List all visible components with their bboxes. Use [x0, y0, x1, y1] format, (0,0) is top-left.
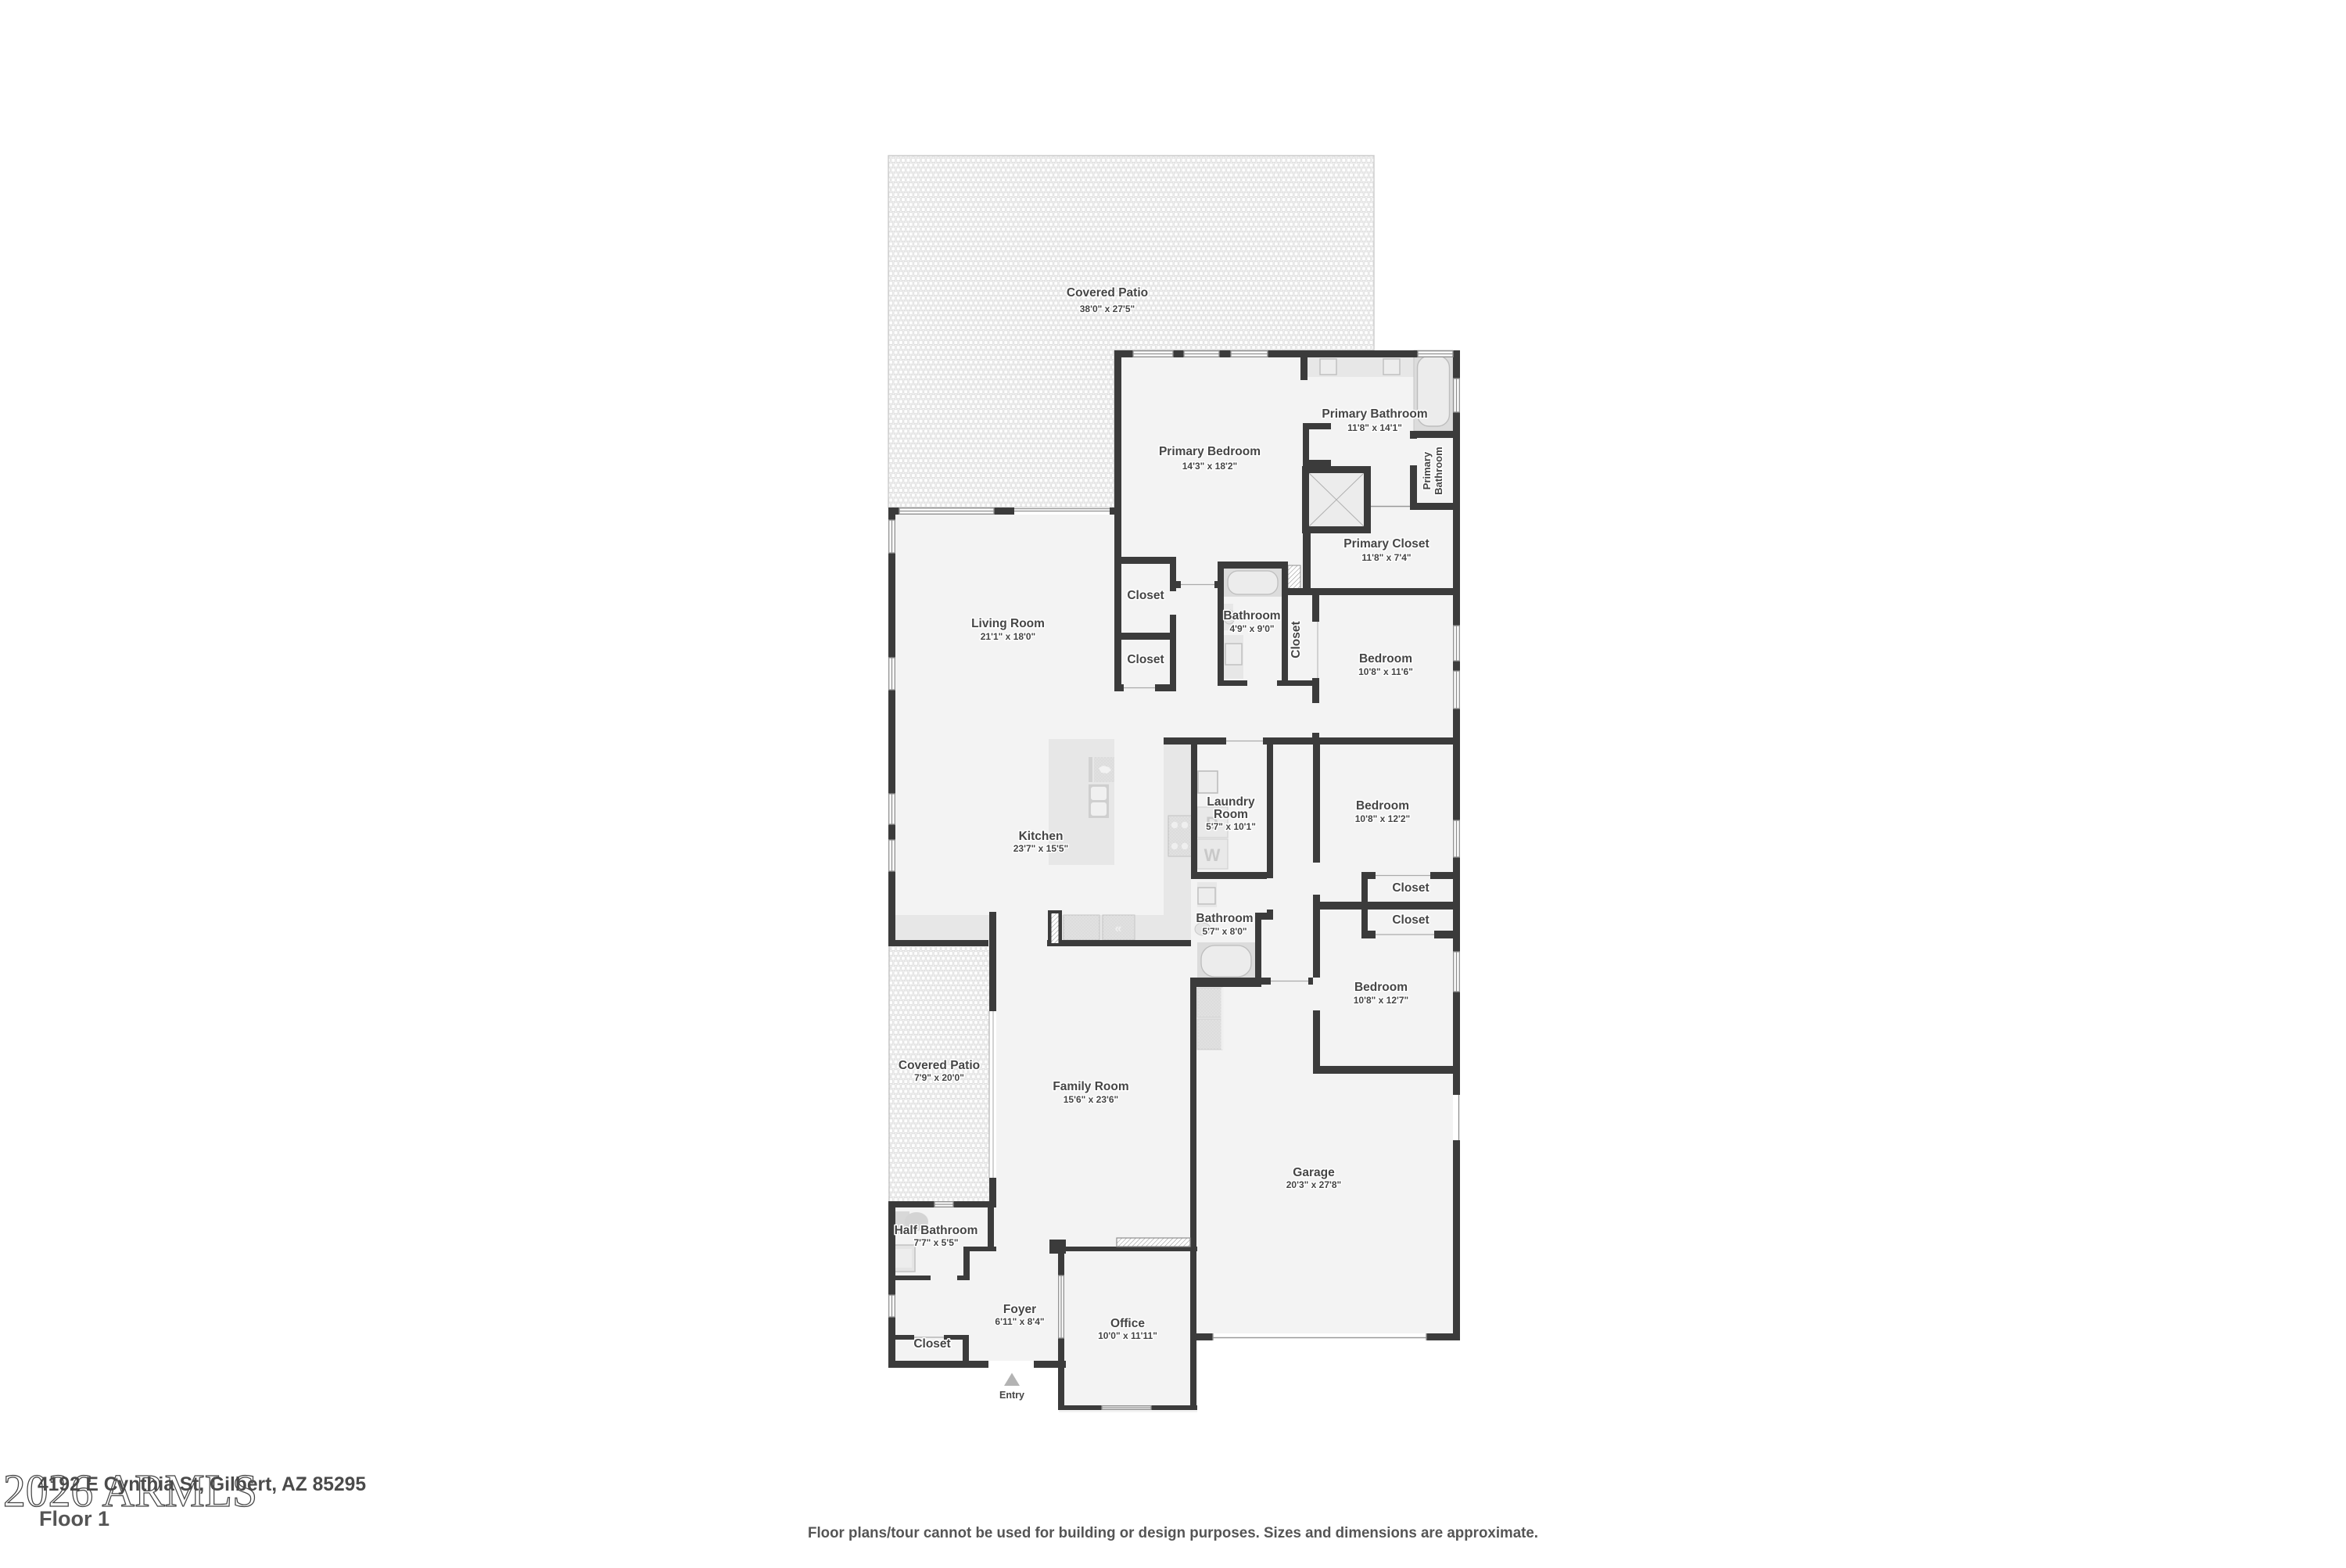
svg-text:20'3" x 27'8": 20'3" x 27'8" — [1286, 1179, 1341, 1190]
svg-text:Closet: Closet — [1392, 881, 1429, 895]
svg-text:5'7" x 10'1": 5'7" x 10'1" — [1206, 821, 1256, 832]
svg-text:Bathroom: Bathroom — [1196, 912, 1253, 925]
svg-text:Office: Office — [1110, 1317, 1145, 1330]
svg-text:Foyer: Foyer — [1003, 1303, 1036, 1316]
svg-text:Floor plans/tour cannot be use: Floor plans/tour cannot be used for buil… — [808, 1524, 1538, 1541]
svg-text:Closet: Closet — [913, 1337, 950, 1351]
svg-text:Closet: Closet — [1290, 621, 1303, 658]
svg-text:Half Bathroom: Half Bathroom — [895, 1224, 978, 1237]
svg-text:Laundry: Laundry — [1207, 795, 1255, 809]
svg-text:Family Room: Family Room — [1053, 1080, 1128, 1093]
svg-text:10'8" x 12'2": 10'8" x 12'2" — [1355, 813, 1410, 824]
svg-text:W: W — [1204, 845, 1221, 865]
svg-text:Room: Room — [1214, 808, 1248, 821]
svg-text:11'8" x 7'4": 11'8" x 7'4" — [1361, 552, 1411, 563]
svg-text:Entry: Entry — [999, 1390, 1024, 1401]
svg-text:14'3" x 18'2": 14'3" x 18'2" — [1182, 461, 1237, 472]
svg-text:4'9" x 9'0": 4'9" x 9'0" — [1229, 623, 1274, 634]
svg-text:PrimaryBathroom: PrimaryBathroom — [1421, 447, 1444, 494]
svg-text:Primary Bathroom: Primary Bathroom — [1322, 407, 1427, 421]
svg-text:21'1" x 18'0": 21'1" x 18'0" — [981, 631, 1035, 642]
svg-text:«: « — [1115, 922, 1122, 935]
svg-text:7'9" x 20'0": 7'9" x 20'0" — [914, 1072, 964, 1083]
svg-text:Bedroom: Bedroom — [1354, 981, 1408, 994]
svg-text:6'11" x 8'4": 6'11" x 8'4" — [995, 1316, 1044, 1327]
svg-text:Closet: Closet — [1127, 589, 1164, 602]
svg-text:23'7" x 15'5": 23'7" x 15'5" — [1013, 843, 1068, 854]
svg-text:38'0" x 27'5": 38'0" x 27'5" — [1080, 303, 1135, 314]
svg-text:Kitchen: Kitchen — [1019, 830, 1064, 843]
svg-text:10'0" x 11'11": 10'0" x 11'11" — [1098, 1330, 1157, 1341]
svg-text:4192 E Cynthia St, Gilbert, AZ: 4192 E Cynthia St, Gilbert, AZ 85295 — [38, 1473, 366, 1495]
svg-text:10'8" x 12'7": 10'8" x 12'7" — [1354, 995, 1408, 1006]
svg-text:Covered Patio: Covered Patio — [1067, 286, 1148, 300]
svg-text:7'7" x 5'5": 7'7" x 5'5" — [913, 1237, 958, 1248]
svg-text:5'7" x 8'0": 5'7" x 8'0" — [1202, 926, 1247, 937]
svg-text:11'8" x 14'1": 11'8" x 14'1" — [1347, 422, 1402, 433]
svg-text:Primary Closet: Primary Closet — [1343, 537, 1429, 551]
svg-text:Bedroom: Bedroom — [1356, 799, 1409, 813]
svg-text:Bathroom: Bathroom — [1223, 609, 1280, 623]
svg-text:Floor 1: Floor 1 — [39, 1507, 109, 1530]
svg-text:Bedroom: Bedroom — [1359, 652, 1412, 666]
svg-text:Living Room: Living Room — [971, 617, 1045, 630]
svg-text:Covered Patio: Covered Patio — [899, 1059, 980, 1072]
svg-text:Closet: Closet — [1392, 913, 1429, 927]
svg-text:10'8" x 11'6": 10'8" x 11'6" — [1358, 666, 1413, 677]
svg-text:15'6" x 23'6": 15'6" x 23'6" — [1064, 1094, 1118, 1105]
svg-text:Primary Bedroom: Primary Bedroom — [1159, 445, 1261, 458]
svg-text:Garage: Garage — [1293, 1166, 1335, 1179]
svg-text:Closet: Closet — [1127, 653, 1164, 666]
